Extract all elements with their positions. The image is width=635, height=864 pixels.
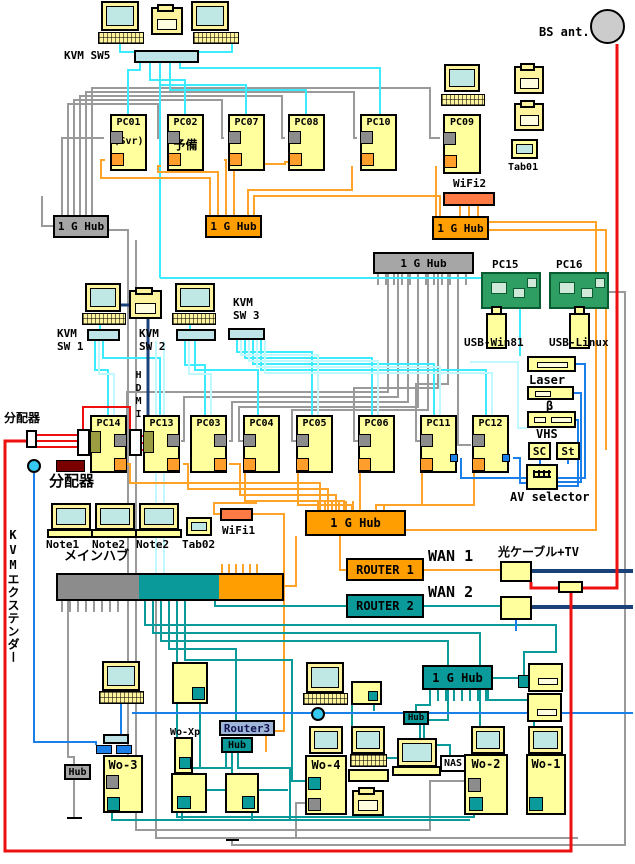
printer-paper-slot [157, 4, 174, 12]
kvm-port [143, 431, 154, 453]
note2b-label: Note2 [136, 539, 169, 550]
pc-label: PC10 [362, 117, 395, 128]
keyboard-icon [172, 313, 216, 325]
kvm-sw3-label: KVM SW 3 [233, 296, 260, 322]
main-hub-label: メインハブ [64, 551, 129, 562]
pc-label: PC08 [290, 117, 323, 128]
printer-paper-slot [520, 100, 536, 108]
main-hub-teal-segment [139, 575, 219, 599]
lan-port-grey [358, 434, 371, 447]
sc-tuner: SC [528, 442, 551, 460]
monitor-screen [314, 731, 338, 749]
lan-port-teal [179, 757, 191, 769]
monitor-screen [90, 288, 116, 307]
splitter-darkred-box [56, 460, 85, 472]
pc16-label: PC16 [556, 259, 583, 270]
hub-1g-orange-topright: 1 G Hub [432, 216, 489, 240]
av-selector-buttons [533, 470, 551, 478]
laptop-note2-icon [95, 503, 135, 530]
hub-small-teal: Hub [221, 737, 253, 753]
paper-tray-icon [348, 769, 389, 782]
printer-icon [514, 103, 544, 131]
desktop-computer-icon [85, 283, 121, 312]
lan-port-orange [243, 458, 256, 471]
lan-port-teal [469, 797, 483, 811]
lan-port-orange [296, 458, 309, 471]
lan-port-grey [110, 131, 123, 144]
lan-port-teal [242, 796, 255, 809]
router3: Router3 [219, 720, 275, 736]
pc-box-pc11: PC11 [420, 415, 457, 473]
laptop-note1-icon [51, 503, 91, 530]
pc-label: PC01 [112, 117, 145, 128]
lan-port-grey [243, 434, 256, 447]
pc-box-pc06: PC06 [358, 415, 395, 473]
pc-box-pc02: PC02 予備 [167, 114, 204, 171]
cyan-node-dot [27, 459, 41, 473]
laptop-screen [100, 508, 130, 525]
workstation-label: Wo-2 [466, 757, 506, 771]
pc-box-pc01: PC01 (Svr) [110, 114, 147, 171]
kvm-connector [129, 429, 142, 456]
hdmi-label: HDMI [133, 370, 144, 420]
lan-port-orange [229, 153, 242, 166]
tab01-label: Tab01 [508, 162, 538, 173]
desktop-computer-icon [102, 661, 140, 691]
nas-box: NAS [440, 755, 466, 772]
monitor-screen [476, 731, 500, 749]
board-chip [595, 278, 605, 288]
bs-antenna-icon [590, 9, 625, 44]
monitor-screen [106, 6, 134, 26]
hub-1g-orange-topmid: 1 G Hub [205, 215, 262, 238]
pc-box-pc10: PC10 [360, 114, 397, 171]
monitor-icon [471, 726, 505, 754]
main-hub-grey-segment [58, 575, 139, 599]
lan-port-grey [214, 434, 227, 447]
lan-port-teal [177, 796, 191, 809]
lan-port-orange [289, 153, 302, 166]
drive-unit-icon [528, 663, 563, 692]
pc-label: PC13 [145, 418, 178, 429]
av-port-blue [450, 454, 458, 462]
monitor-icon [351, 726, 385, 754]
keyboard-icon [82, 313, 126, 325]
av-selector-label: AV selector [510, 491, 589, 504]
tv-splitter [558, 581, 583, 593]
tablet-tab02-icon [186, 517, 212, 536]
monitor-screen [107, 666, 135, 686]
sbc-board-pc16 [549, 272, 609, 309]
pc-label: PC06 [360, 418, 393, 429]
usb-win81-label: USB-Win81 [464, 337, 524, 348]
av-port-blue [502, 454, 510, 462]
keyboard-icon [303, 693, 348, 705]
lan-port-grey [360, 131, 373, 144]
desktop-computer-icon [101, 1, 139, 31]
pc-label: PC14 [92, 418, 125, 429]
lan-port-grey [288, 131, 301, 144]
device-slot [537, 362, 568, 368]
lan-port-grey [167, 434, 180, 447]
monitor-icon [528, 726, 563, 754]
vhs-label: VHS [536, 428, 558, 441]
monitor-screen [196, 6, 224, 26]
kvm-dongle-blue [96, 745, 112, 754]
pc-box-pc03: PC03 [190, 415, 227, 473]
network-diagram: KVM SW5 BS ant. PC01 (Svr) PC02 予備 PC07 … [0, 0, 635, 864]
board-chip [581, 288, 593, 298]
tablet-screen [516, 144, 533, 154]
lan-port-grey [296, 434, 309, 447]
laptop-screen [402, 743, 432, 762]
device-slot [551, 417, 572, 423]
printer-output [135, 303, 156, 314]
splitter-label-1: 分配器 [4, 412, 40, 425]
keyboard-icon [350, 754, 387, 767]
lan-port-orange [444, 155, 457, 168]
wifi1-access-point [220, 508, 253, 521]
board-chip [513, 288, 525, 298]
workstation-wo3: Wo-3 [103, 755, 143, 813]
wifi1-label: WiFi1 [222, 525, 255, 536]
pc-box-pc12: PC12 [472, 415, 509, 473]
lan-port-orange [168, 153, 181, 166]
workstation-wo4: Wo-4 [305, 755, 347, 815]
usb-stick-cap [574, 306, 585, 315]
workstation-label: Wo-3 [105, 758, 141, 772]
monitor-icon [309, 726, 343, 754]
monitor-screen [533, 731, 558, 749]
kvm-connector [77, 429, 90, 456]
monitor-screen [356, 731, 380, 749]
laptop-base [392, 766, 441, 776]
laptop-icon [397, 738, 437, 767]
keyboard-icon [99, 691, 144, 704]
printer-icon [129, 290, 162, 319]
workstation-label: Wo-4 [307, 758, 345, 772]
tablet-tab01-icon [511, 139, 538, 159]
lan-port-grey [228, 131, 241, 144]
kvm-sw5-label: KVM SW5 [64, 50, 110, 61]
bs-antenna-label: BS ant. [539, 26, 590, 39]
lan-port-grey [420, 434, 433, 447]
wifi2-label: WiFi2 [453, 178, 486, 189]
hub-1g-teal: 1 G Hub [422, 665, 493, 690]
usb-stick-cap [491, 306, 502, 315]
monitor-screen [311, 667, 339, 688]
printer-paper-slot [358, 787, 375, 795]
mini-pc-box [172, 662, 208, 704]
drive-unit-icon [527, 693, 562, 722]
pc-label: PC12 [474, 418, 507, 429]
pc-box-pc13: PC13 [143, 415, 180, 473]
pc-label: PC09 [445, 117, 479, 128]
lan-port-grey [468, 778, 481, 792]
device-slot [535, 391, 551, 397]
keyboard-icon [193, 32, 239, 44]
lan-port-grey [443, 132, 456, 145]
tablet-screen [191, 522, 207, 531]
main-h ub [56, 573, 284, 601]
printer-paper-slot [135, 287, 152, 295]
desktop-computer-icon [306, 662, 344, 693]
st-tuner: St [556, 442, 580, 460]
board-chip [559, 282, 575, 294]
main-hub-orange-segment [219, 575, 282, 599]
blue-node-dot [311, 707, 325, 721]
pc-box-pc09: PC09 [443, 114, 481, 174]
desktop-computer-icon [175, 283, 215, 312]
printer-output [157, 19, 177, 30]
printer-icon [514, 66, 544, 94]
lan-port-teal [368, 691, 378, 701]
lan-port-grey [106, 775, 119, 789]
lan-port-orange [167, 458, 180, 471]
keyboard-icon [441, 94, 485, 106]
lan-port-teal [107, 797, 120, 811]
lan-port-orange [361, 153, 374, 166]
router1: ROUTER 1 [346, 558, 424, 581]
monitor-screen [180, 288, 210, 307]
mini-pc-box [171, 773, 207, 813]
av-selector-box [526, 464, 558, 490]
lan-port-teal [192, 687, 205, 700]
printer-output [520, 78, 539, 89]
printer-output [358, 800, 378, 811]
laptop-base [91, 529, 138, 538]
hub-1g-grey-top: 1 G Hub [53, 215, 109, 238]
laptop-screen [144, 508, 174, 525]
kvm-extender-label: KVMエクステンダー [6, 528, 19, 763]
laptop-screen [56, 508, 86, 525]
kvm-switch-small [103, 734, 129, 744]
onu-wan1 [500, 561, 532, 582]
device-slot [537, 709, 557, 716]
tab02-label: Tab02 [182, 539, 215, 550]
lan-port-grey [167, 131, 180, 144]
pc-label: PC05 [298, 418, 331, 429]
kvm-sw2-label: KVM SW 2 [139, 327, 166, 353]
printer-paper-slot [520, 63, 536, 71]
pc-label: PC04 [245, 418, 278, 429]
pc-box-pc04: PC04 [243, 415, 280, 473]
device-slot [534, 417, 546, 423]
desktop-computer-icon [444, 64, 480, 92]
kvm-switch-2 [176, 329, 216, 341]
pc-label: PC11 [422, 418, 455, 429]
device-slot [538, 678, 558, 685]
hub-1g-orange-mid: 1 G Hub [305, 510, 406, 536]
laptop-note2b-icon [139, 503, 179, 530]
pc-label: PC02 [169, 117, 202, 128]
board-chip [491, 282, 507, 294]
lan-port-orange [114, 458, 127, 471]
lan-port-orange [358, 458, 371, 471]
printer-output [520, 115, 539, 126]
mini-pc-box [225, 773, 259, 813]
splitter-label-2: 分配器 [49, 476, 94, 487]
lan-port-orange [472, 458, 485, 471]
pc-label: PC03 [192, 418, 225, 429]
wan2-label: WAN 2 [428, 587, 473, 598]
beta-vcr [527, 386, 574, 400]
kvm-dongle-blue [116, 745, 132, 754]
lan-port-grey [114, 434, 127, 447]
external-drive-box [351, 681, 382, 705]
onu-wan2 [500, 596, 532, 620]
pc-box-pc05: PC05 [296, 415, 333, 473]
printer-icon [151, 7, 183, 35]
laptop-base [47, 529, 94, 538]
lan-port-grey [308, 798, 321, 811]
pc-box-pc08: PC08 [288, 114, 325, 171]
printer-icon [352, 790, 384, 816]
wan1-label: WAN 1 [428, 551, 473, 562]
lan-port-teal [518, 675, 529, 688]
lan-port-teal [308, 777, 321, 790]
laser-disc-player [527, 356, 576, 372]
pc-label: PC07 [230, 117, 263, 128]
keyboard-icon [98, 32, 144, 44]
workstation-wo1: Wo-1 [526, 754, 566, 815]
lan-port-orange [214, 458, 227, 471]
lan-port-teal [529, 797, 543, 811]
board-chip [527, 278, 537, 288]
lan-port-grey [472, 434, 485, 447]
workstation-wo2: Wo-2 [464, 754, 508, 815]
usb-linux-label: USB-Linux [549, 337, 609, 348]
pc-box-pc14: PC14 [90, 415, 127, 473]
hub-1g-grey-mid: 1 G Hub [373, 252, 474, 274]
sbc-board-pc15 [481, 272, 541, 309]
kvm-switch-3 [228, 328, 265, 340]
desktop-computer-icon [191, 1, 229, 31]
monitor-screen [449, 69, 475, 87]
kvm-sw1-label: KVM SW 1 [57, 327, 84, 353]
pc-wo-xp [174, 737, 193, 774]
kvm-port [90, 431, 101, 453]
kvm-switch-1 [87, 329, 120, 341]
hub-small-grey: Hub [64, 764, 91, 780]
lan-port-orange [420, 458, 433, 471]
pc15-label: PC15 [492, 259, 519, 270]
lan-port-orange [111, 153, 124, 166]
splitter-box [26, 430, 37, 448]
wifi2-access-point [443, 192, 495, 206]
laptop-base [135, 529, 182, 538]
hub-small-teal-mid: Hub [403, 711, 429, 725]
workstation-label: Wo-1 [528, 757, 564, 771]
fiber-tv-label: 光ケーブル+TV [498, 546, 579, 559]
kvm-switch-5 [134, 50, 199, 63]
pc-box-pc07: PC07 [228, 114, 265, 171]
router2: ROUTER 2 [346, 594, 424, 618]
vhs-vcr [527, 411, 576, 428]
